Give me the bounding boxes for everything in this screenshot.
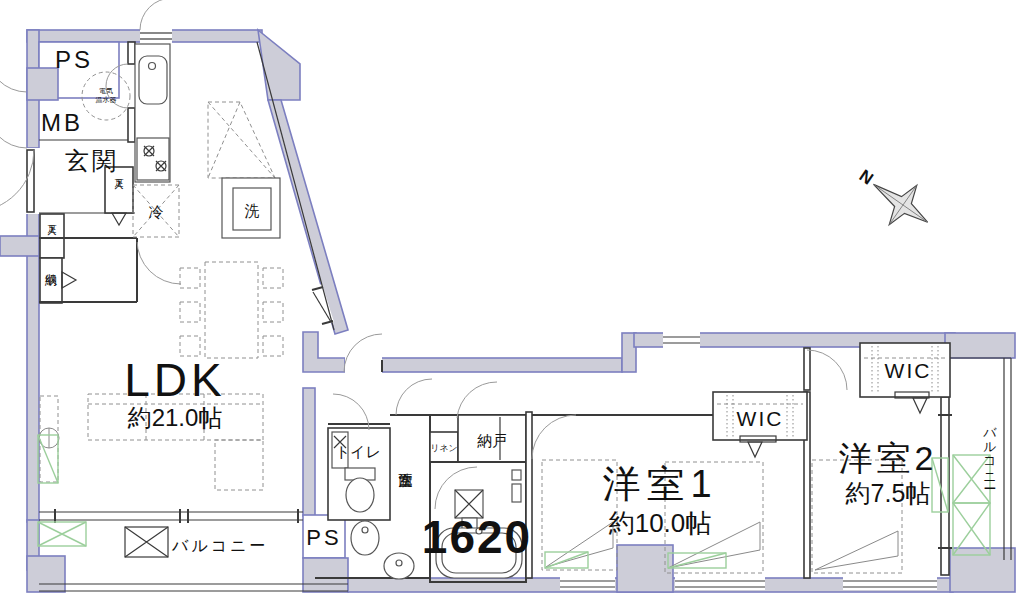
label-washer: 洗 bbox=[245, 202, 260, 219]
toilet-bowl bbox=[346, 478, 374, 512]
floor-plan: N PS MB 玄関 電気 温水器 冷 洗 下足入 下足入 収納 LDK 約21… bbox=[0, 0, 1024, 598]
label-bath-size: 1620 bbox=[422, 511, 532, 563]
label-wic2: WIC bbox=[885, 359, 932, 382]
label-storeroom: 納戸 bbox=[477, 432, 507, 449]
compass-north-label: N bbox=[856, 166, 877, 189]
label-bedroom1-size: 約10.0帖 bbox=[609, 508, 712, 538]
tv-board bbox=[39, 396, 59, 482]
label-bedroom1: 洋室1 bbox=[602, 463, 717, 505]
label-water-heater-2: 温水器 bbox=[96, 96, 117, 104]
stove bbox=[137, 138, 169, 180]
balcony-left-marks bbox=[38, 522, 168, 557]
label-fridge: 冷 bbox=[149, 203, 164, 220]
dining-table bbox=[205, 262, 258, 358]
label-washroom: 洗面室 bbox=[398, 473, 412, 489]
label-toilet: トイレ bbox=[335, 443, 381, 460]
label-bedroom2: 洋室2 bbox=[839, 439, 938, 477]
label-ps-bottom: PS bbox=[306, 525, 341, 550]
label-ps-top: PS bbox=[55, 46, 93, 73]
label-bedroom2-size: 約7.5帖 bbox=[845, 479, 931, 507]
faucet-icon bbox=[149, 63, 156, 70]
label-balcony-right: バルコニー bbox=[982, 418, 997, 489]
interior-walls bbox=[27, 42, 1011, 591]
vanity-sink bbox=[351, 521, 379, 555]
floor-plan-canvas: N PS MB 玄関 電気 温水器 冷 洗 下足入 下足入 収納 LDK 約21… bbox=[0, 0, 1024, 598]
label-wic1: WIC bbox=[737, 407, 784, 430]
label-water-heater-1: 電気 bbox=[99, 87, 113, 94]
label-balcony-left: バルコニー bbox=[171, 537, 269, 554]
label-linen: リネン bbox=[430, 443, 458, 453]
label-entrance: 玄関 bbox=[65, 147, 119, 174]
washroom-fixtures bbox=[351, 521, 414, 579]
label-ldk-size: 約21.0帖 bbox=[127, 404, 223, 431]
label-ldk: LDK bbox=[124, 354, 225, 406]
compass: N bbox=[847, 155, 942, 241]
label-mb: MB bbox=[41, 109, 83, 136]
